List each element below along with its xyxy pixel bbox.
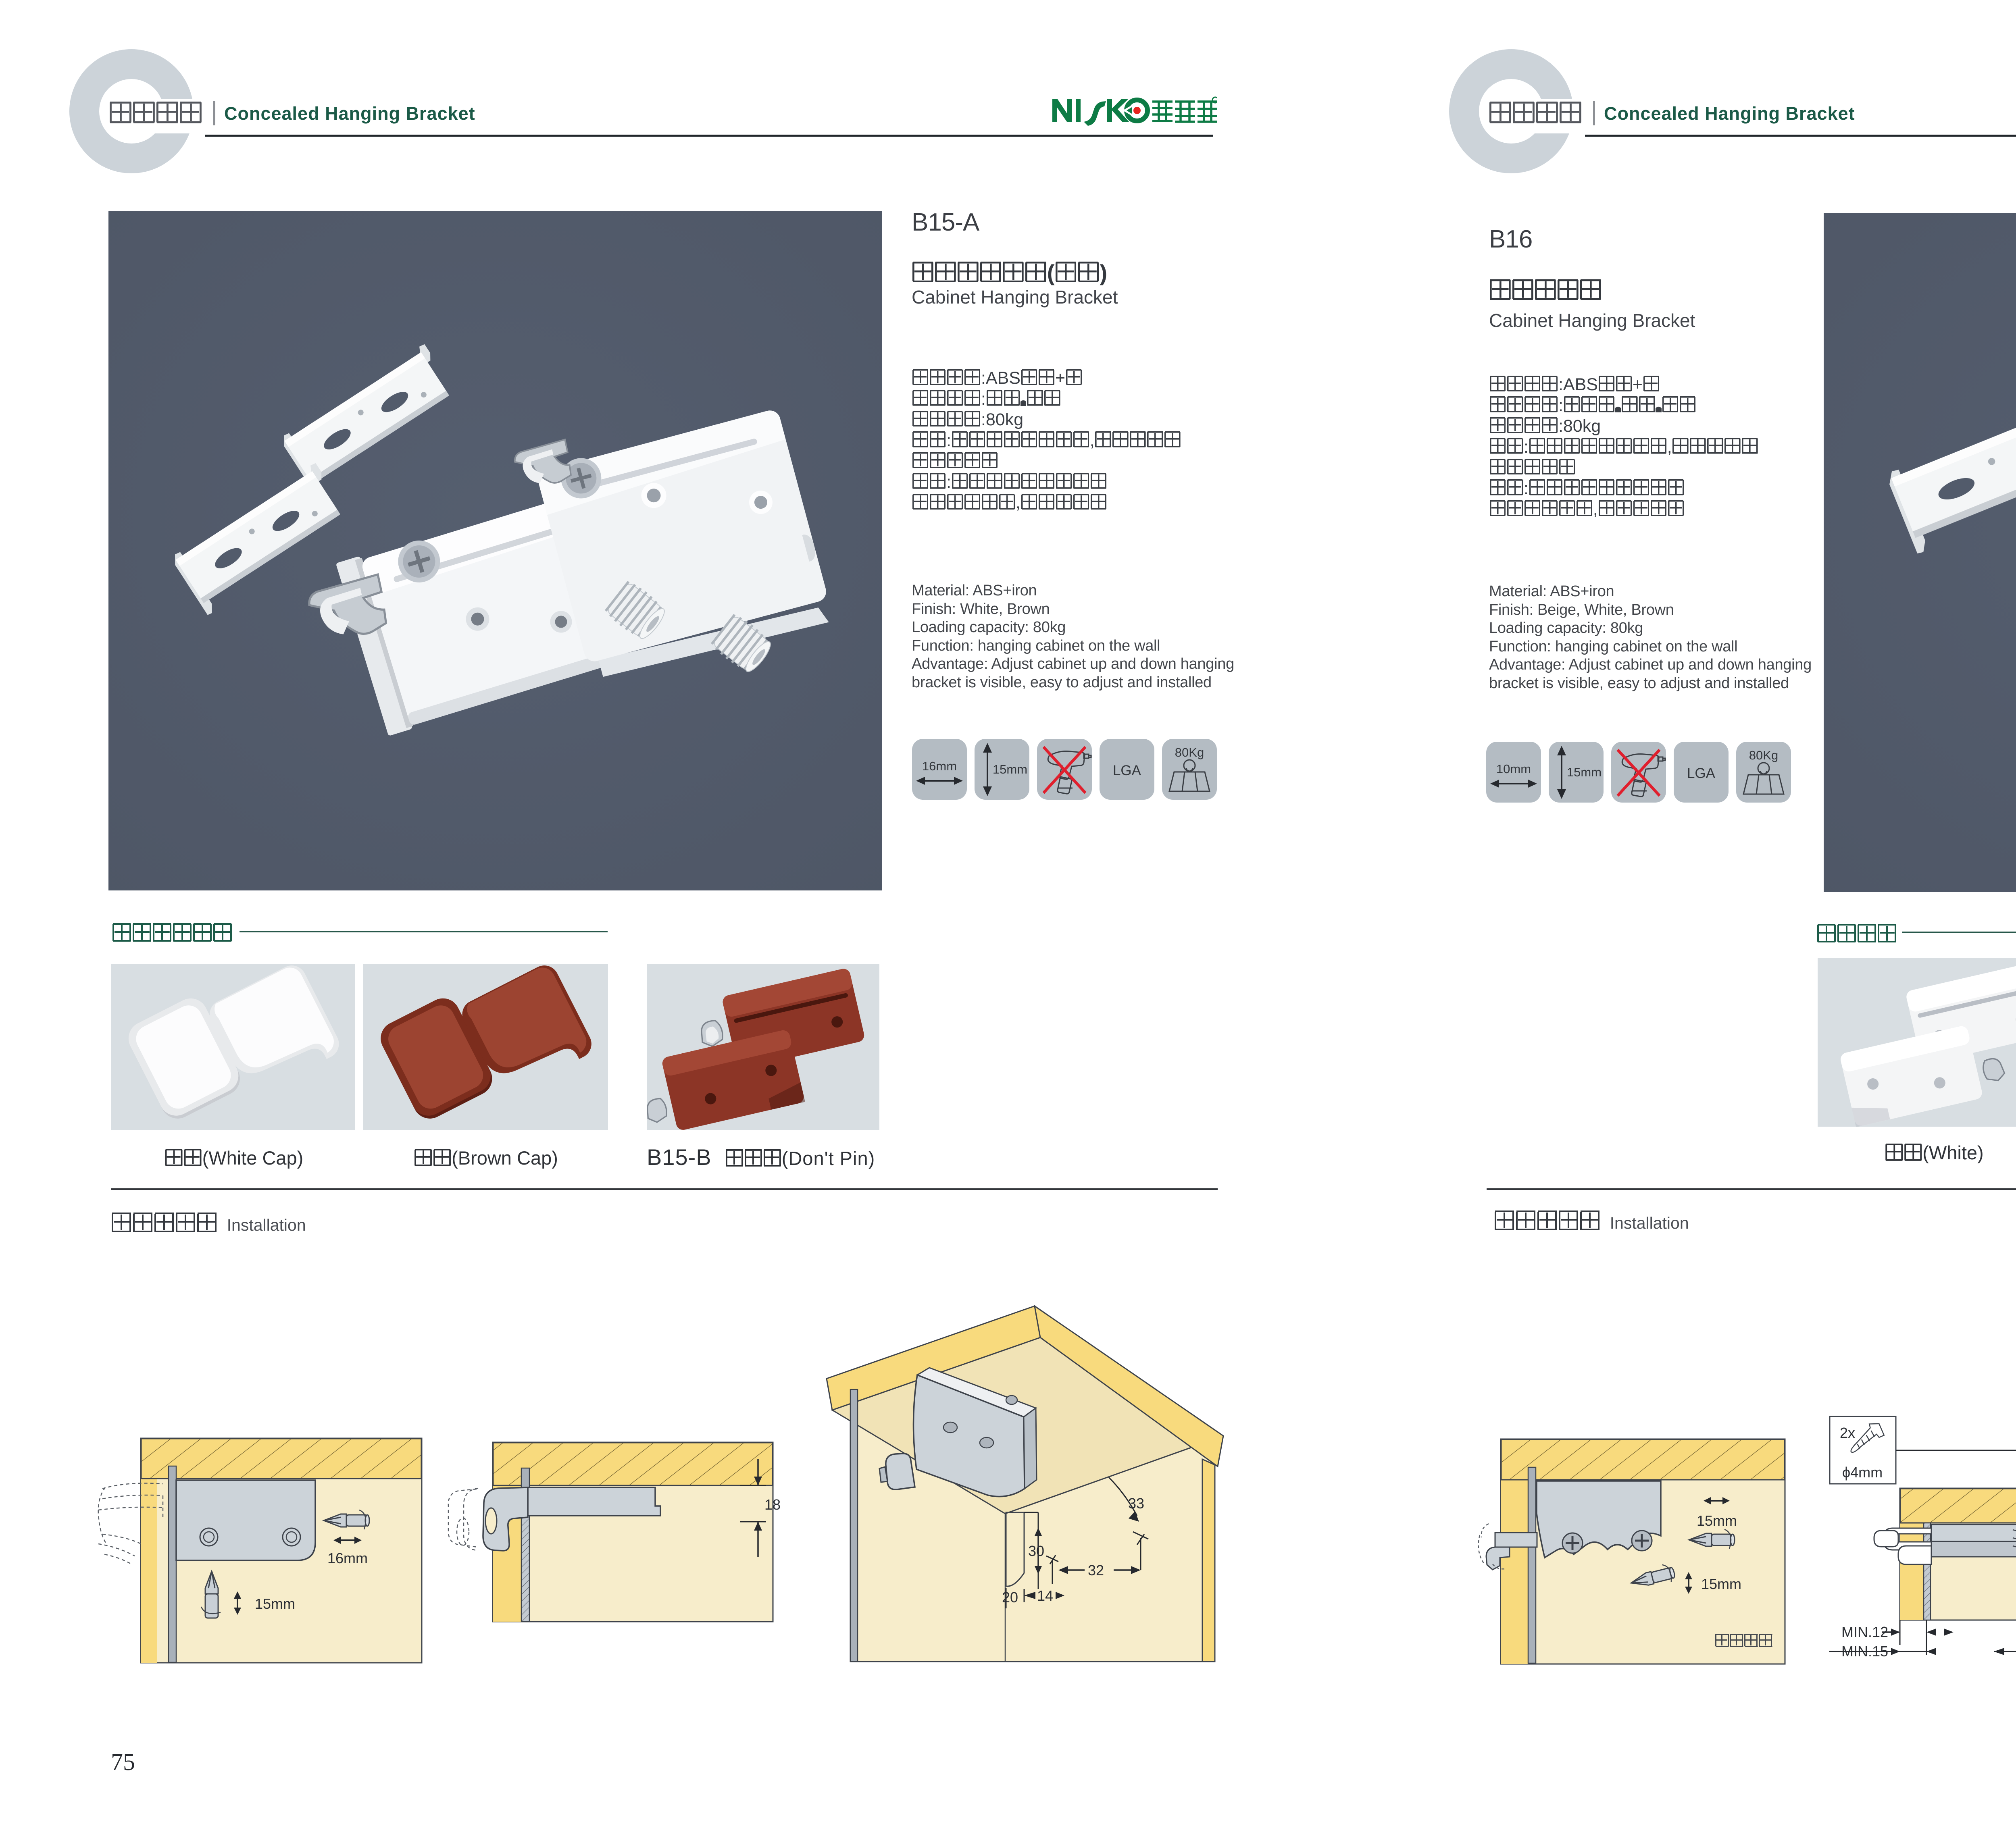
svg-text:15mm: 15mm: [1701, 1576, 1741, 1592]
svg-text:80Kg: 80Kg: [1175, 745, 1204, 759]
svg-text:10mm: 10mm: [1496, 762, 1531, 776]
svg-text:16mm: 16mm: [922, 759, 957, 773]
svg-text:14: 14: [1037, 1587, 1053, 1604]
svg-text:15mm: 15mm: [1567, 765, 1602, 779]
svg-text:16mm: 16mm: [327, 1550, 368, 1566]
svg-text:2x: 2x: [1840, 1425, 1855, 1441]
svg-text:15mm: 15mm: [1697, 1512, 1737, 1529]
svg-text:20: 20: [1002, 1589, 1018, 1606]
svg-text:MIN.12: MIN.12: [1841, 1624, 1888, 1640]
svg-text:ϕ4mm: ϕ4mm: [1842, 1464, 1883, 1481]
svg-text:32: 32: [1088, 1562, 1104, 1579]
svg-text:LGA: LGA: [1113, 763, 1141, 778]
svg-text:15mm: 15mm: [993, 762, 1027, 776]
svg-text:15mm: 15mm: [255, 1595, 295, 1612]
svg-text:80Kg: 80Kg: [1749, 748, 1778, 762]
svg-text:33: 33: [1128, 1495, 1144, 1512]
svg-text:LGA: LGA: [1687, 765, 1716, 781]
svg-text:18: 18: [764, 1496, 781, 1513]
svg-text:30: 30: [1028, 1543, 1044, 1559]
